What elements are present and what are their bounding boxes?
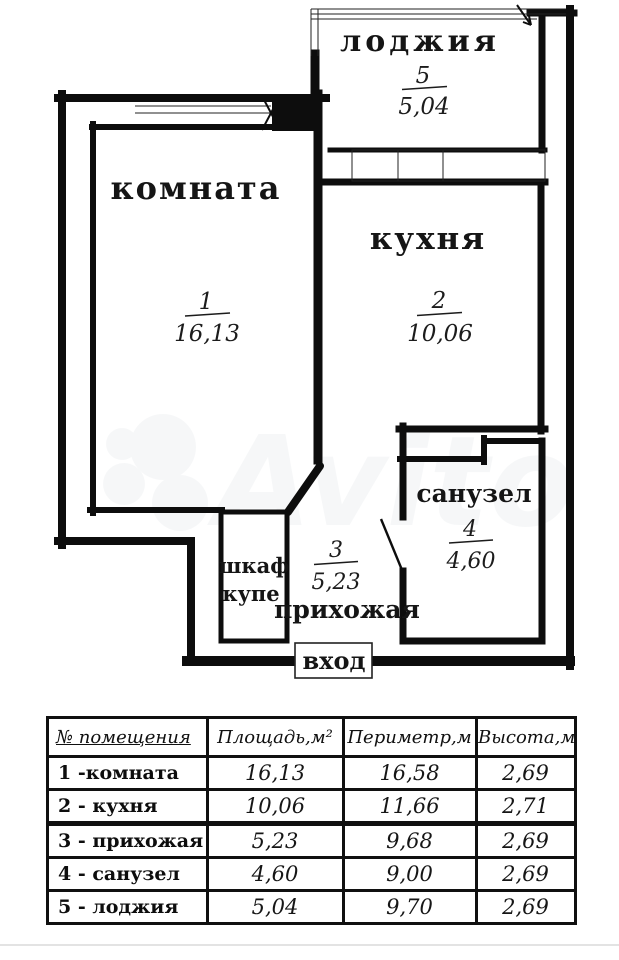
- bathroom-label: санузел: [416, 479, 531, 508]
- rooms-table: № помещения Площадь,м² Периметр,м Высота…: [46, 716, 577, 925]
- bathroom-area: 4,60: [446, 549, 496, 574]
- table-row: 2 - кухня 10,06 11,66 2,71: [48, 790, 576, 824]
- header-perimeter: Периметр,м: [344, 718, 477, 757]
- bottom-divider: [0, 944, 619, 946]
- walls: [58, 9, 574, 666]
- closet-label-line1: шкаф: [219, 553, 289, 578]
- header-area: Площадь,м²: [208, 718, 344, 757]
- loggia-label: лоджия: [340, 24, 500, 59]
- row-area: 5,04: [208, 891, 344, 924]
- row-height: 2,69: [477, 891, 576, 924]
- row-area: 16,13: [208, 757, 344, 790]
- row-name: 5 - лоджия: [48, 891, 208, 924]
- room-area: 16,13: [174, 321, 240, 347]
- table-row: 1 -комната 16,13 16,58 2,69: [48, 757, 576, 790]
- row-name: 3 - прихожая: [48, 824, 208, 858]
- row-name: 4 - санузел: [48, 858, 208, 891]
- loggia-area: 5,04: [398, 94, 449, 120]
- row-perimeter: 16,58: [344, 757, 477, 790]
- row-perimeter: 9,68: [344, 824, 477, 858]
- room-label: комната: [111, 169, 282, 207]
- floorplan-page: Avito: [0, 0, 619, 960]
- header-height: Высота,м: [477, 718, 576, 757]
- row-perimeter: 9,00: [344, 858, 477, 891]
- row-area: 5,23: [208, 824, 344, 858]
- table-row: 5 - лоджия 5,04 9,70 2,69: [48, 891, 576, 924]
- row-perimeter: 11,66: [344, 790, 477, 824]
- row-name: 2 - кухня: [48, 790, 208, 824]
- room-number: 1: [199, 289, 214, 315]
- kitchen-number: 2: [431, 288, 447, 314]
- table-header: № помещения Площадь,м² Периметр,м Высота…: [48, 718, 576, 757]
- hallway-label: прихожая: [274, 595, 420, 624]
- row-height: 2,69: [477, 858, 576, 891]
- row-height: 2,69: [477, 757, 576, 790]
- row-area: 10,06: [208, 790, 344, 824]
- row-area: 4,60: [208, 858, 344, 891]
- loggia-number: 5: [416, 63, 431, 89]
- closet-label-line2: купе: [222, 581, 279, 606]
- kitchen-label: кухня: [370, 221, 486, 257]
- header-room-number: № помещения: [48, 718, 208, 757]
- row-perimeter: 9,70: [344, 891, 477, 924]
- kitchen-area: 10,06: [407, 321, 473, 347]
- floorplan-drawing: Avito: [0, 0, 619, 712]
- hallway-area: 5,23: [312, 570, 361, 595]
- hallway-number: 3: [329, 538, 343, 563]
- entrance-label: вход: [303, 646, 366, 675]
- row-height: 2,69: [477, 824, 576, 858]
- row-name: 1 -комната: [48, 757, 208, 790]
- row-height: 2,71: [477, 790, 576, 824]
- table-row: 4 - санузел 4,60 9,00 2,69: [48, 858, 576, 891]
- table-row: 3 - прихожая 5,23 9,68 2,69: [48, 824, 576, 858]
- bathroom-number: 4: [462, 517, 477, 542]
